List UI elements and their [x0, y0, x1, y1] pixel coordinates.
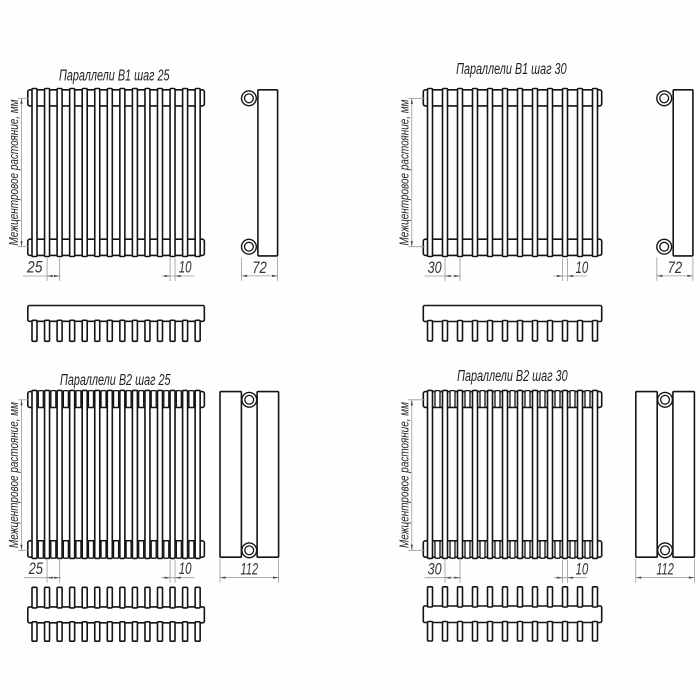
svg-text:10: 10	[179, 560, 192, 578]
svg-text:25: 25	[28, 560, 44, 578]
svg-text:Межцентровое растояние, мм: Межцентровое растояние, мм	[6, 402, 21, 548]
svg-text:Параллели В1 шаг 25: Параллели В1 шаг 25	[59, 67, 170, 84]
svg-text:112: 112	[656, 560, 674, 578]
svg-text:Параллели В2 шаг 30: Параллели В2 шаг 30	[457, 368, 568, 385]
svg-text:Параллели В1 шаг 30: Параллели В1 шаг 30	[456, 61, 567, 78]
svg-text:30: 30	[428, 561, 442, 579]
svg-text:25: 25	[26, 258, 43, 276]
svg-text:10: 10	[576, 561, 589, 579]
svg-text:Межцентровое растояние, мм: Межцентровое растояние, мм	[396, 99, 411, 245]
svg-text:30: 30	[428, 259, 442, 277]
svg-text:Параллели В2 шаг 25: Параллели В2 шаг 25	[60, 372, 171, 389]
svg-text:Межцентровое растояние, мм: Межцентровое растояние, мм	[396, 402, 411, 548]
svg-text:72: 72	[252, 259, 267, 277]
svg-text:112: 112	[241, 560, 259, 578]
svg-text:72: 72	[668, 259, 683, 277]
svg-text:10: 10	[576, 259, 589, 277]
svg-text:10: 10	[179, 258, 192, 276]
svg-text:Межцентровое растояние, мм: Межцентровое растояние, мм	[6, 99, 21, 245]
